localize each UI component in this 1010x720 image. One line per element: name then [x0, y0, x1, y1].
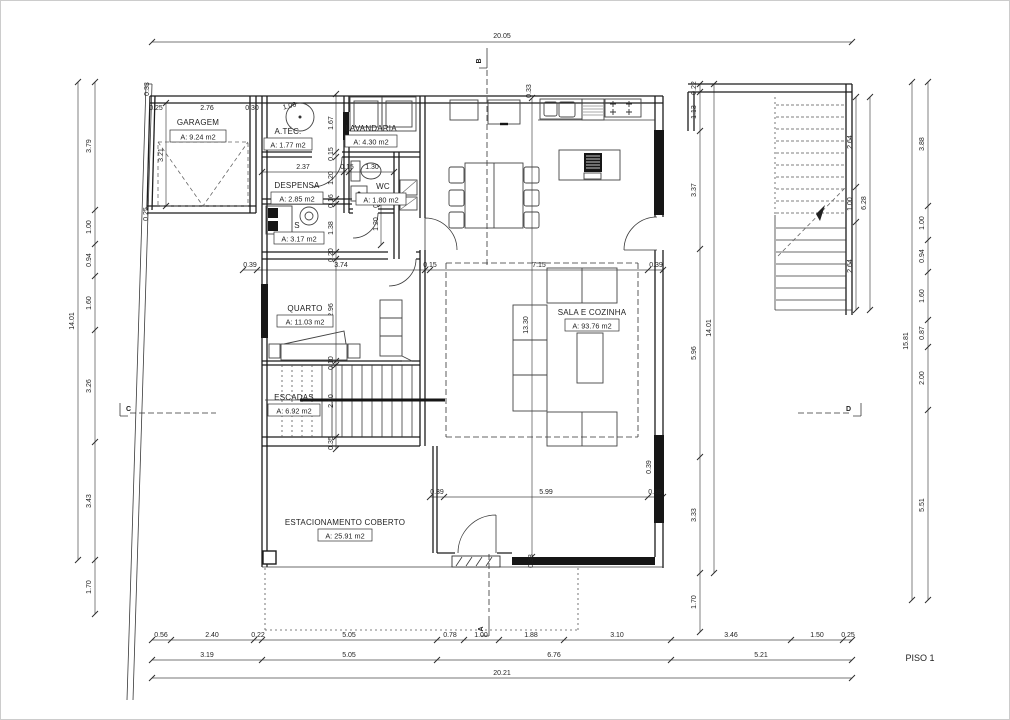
chair	[524, 190, 539, 206]
dim-int-0: 1.67	[328, 116, 335, 130]
dim-mid-1: 3.74	[334, 262, 348, 269]
dim-stair-0: 2.64	[847, 135, 854, 149]
drainer-hatch	[582, 99, 604, 120]
dim-left-total: 14.01	[69, 312, 76, 330]
dim-int-5: 0.20	[328, 248, 335, 262]
area-sala: A: 93.76 m2	[572, 322, 611, 331]
area-quarto: A: 11.03 m2	[286, 318, 325, 327]
dim-inner-0: 0.22	[691, 81, 698, 95]
sink-bowl-right	[559, 102, 575, 117]
dining-set	[449, 163, 539, 228]
nightstand	[348, 344, 360, 358]
room-sala: SALA E COZINHA	[558, 308, 627, 317]
chair	[524, 167, 539, 183]
dim-b1-4: 0.78	[443, 632, 457, 639]
dim-left-5: 3.43	[86, 494, 93, 508]
dim-left-3: 1.60	[86, 296, 93, 310]
chair	[449, 167, 464, 183]
sink-bowl-left	[544, 102, 557, 116]
dim-right-total: 15.81	[903, 332, 910, 350]
dim-desp-2: 1.30	[365, 164, 379, 171]
dim-desp-1: 0.15	[340, 164, 354, 171]
room-lavandaria: LAVANDARIA	[345, 124, 397, 133]
dim-b1-3: 5.05	[342, 632, 356, 639]
carport-column	[263, 551, 276, 564]
chair	[449, 190, 464, 206]
wardrobe	[380, 300, 402, 356]
section-c-label: C	[126, 406, 131, 413]
dim-top-total: 20.05	[493, 33, 511, 40]
dim-int-4: 1.38	[328, 221, 335, 235]
kitchen-fixtures	[450, 99, 655, 180]
dim-left-2: 0.94	[86, 253, 93, 267]
dim-b1-10: 0.25	[841, 632, 855, 639]
dim-sala-height: 13.30	[523, 316, 530, 334]
dim-mid-0: 0.39	[243, 262, 257, 269]
dim-door-wall: 0.38	[528, 554, 535, 568]
dim-low-0: 0.39	[430, 489, 444, 496]
room-wc: WC	[376, 182, 390, 191]
area-escadas: A: 6.92 m2	[276, 407, 311, 416]
chair	[449, 212, 464, 228]
dim-inner-4: 3.33	[691, 508, 698, 522]
stairs-exterior	[775, 97, 852, 310]
section-d-label: D	[846, 406, 851, 413]
dim-stair-2: 2.64	[847, 259, 854, 273]
area-s: A: 3.17 m2	[281, 235, 316, 244]
quarto-window	[261, 284, 268, 338]
dim-b2-2: 6.76	[547, 652, 561, 659]
area-atec: A: 1.77 m2	[270, 141, 305, 150]
stove	[605, 99, 641, 117]
laundry-basin	[300, 207, 318, 225]
area-wc: A: 1.80 m2	[363, 196, 398, 205]
entry-door	[452, 515, 500, 567]
dim-right-1: 1.00	[919, 216, 926, 230]
area-lavandaria: A: 4.30 m2	[353, 138, 388, 147]
terrace-door-arc	[624, 217, 657, 250]
dim-b1-9: 1.50	[810, 632, 824, 639]
dim-b1-8: 3.46	[724, 632, 738, 639]
dim-inner-total: 14.01	[706, 319, 713, 337]
dim-int-8: 2.10	[328, 394, 335, 408]
section-b-label: B	[476, 58, 483, 63]
garage-door	[158, 142, 248, 206]
dim-right-6: 5.51	[919, 498, 926, 512]
quarto-door-arc	[389, 259, 416, 286]
dim-int-7: 0.10	[328, 356, 335, 370]
dim-left-1: 1.00	[86, 220, 93, 234]
dim-low-1: 5.99	[539, 489, 553, 496]
dim-inner-1: 1.13	[691, 105, 698, 119]
dim-desp-0: 2.37	[296, 164, 310, 171]
dim-b1-0: 0.56	[154, 632, 168, 639]
dim-wc-1: 1.20	[373, 217, 380, 231]
dim-garage-1: 0.25	[143, 207, 150, 221]
dim-b1-2: 0.22	[251, 632, 265, 639]
dim-right-4: 0.87	[919, 326, 926, 340]
dim-tope-0: 0.25	[149, 105, 163, 112]
walls	[147, 84, 852, 568]
sala-east-glazing	[654, 435, 664, 523]
hall-sala-door-arc	[425, 218, 457, 250]
dim-right-0: 3.88	[919, 137, 926, 151]
dim-mid-3: 7.15	[532, 262, 546, 269]
section-markers: B A C D	[120, 48, 861, 636]
dim-right-3: 1.60	[919, 289, 926, 303]
floor-plan-page: B A C D	[0, 0, 1010, 720]
dim-int-2: 1.20	[328, 171, 335, 185]
bed	[281, 344, 347, 360]
dim-tope-2: 0.30	[245, 105, 259, 112]
area-garagem: A: 9.24 m2	[180, 133, 215, 142]
dim-inner-3: 5.96	[691, 346, 698, 360]
dim-int-1: 0.15	[328, 147, 335, 161]
room-garagem: GARAGEM	[177, 118, 219, 127]
dimension-labels: 20.05 20.21 14.01 3.79 1.00 0.94 1.60 3.…	[69, 33, 926, 677]
dim-stair-1: 1.00	[847, 197, 854, 211]
room-escadas: ESCADAS	[274, 393, 314, 402]
nightstand	[269, 344, 280, 358]
area-despensa: A: 2.85 m2	[279, 195, 314, 204]
sofa-group	[513, 268, 617, 446]
dim-garage-0: 3.21	[158, 148, 165, 162]
chair	[524, 212, 539, 228]
room-quarto: QUARTO	[287, 304, 322, 313]
dim-inner-2: 3.37	[691, 183, 698, 197]
dim-b1-5: 1.00	[474, 632, 488, 639]
dim-topwall-1: 0.33	[526, 84, 533, 98]
dim-stair-total: 6.28	[861, 196, 868, 210]
dim-int-3: 0.16	[328, 194, 335, 208]
dim-b2-3: 5.21	[754, 652, 768, 659]
room-atec: A.TÉC.	[275, 127, 302, 136]
coffee-table	[577, 333, 603, 383]
dim-topwall-0: 0.33	[144, 82, 151, 96]
area-estacionamento: A: 25.91 m2	[325, 532, 364, 541]
dim-right-2: 0.94	[919, 249, 926, 263]
room-despensa: DESPENSA	[274, 181, 320, 190]
sala-east-window	[654, 130, 664, 215]
dim-left-4: 3.26	[86, 379, 93, 393]
dim-mid-4: 0.39	[649, 262, 663, 269]
dim-inner-5: 1.70	[691, 595, 698, 609]
page-title: PISO 1	[905, 653, 934, 663]
dim-bottom-total: 20.21	[493, 670, 511, 677]
dim-b1-1: 2.40	[205, 632, 219, 639]
sofa-left	[513, 305, 547, 411]
dim-glazing-wall: 0.39	[646, 460, 653, 474]
dim-b1-7: 3.10	[610, 632, 624, 639]
dim-low-2: 0.39	[648, 489, 662, 496]
dim-mid-2: 0.15	[423, 262, 437, 269]
room-estacionamento: ESTACIONAMENTO COBERTO	[285, 518, 405, 527]
dim-left-0: 3.79	[86, 139, 93, 153]
floor-plan-drawing: B A C D	[0, 0, 1010, 720]
dim-b2-0: 3.19	[200, 652, 214, 659]
dim-b1-6: 1.88	[524, 632, 538, 639]
dim-tope-1: 2.76	[200, 105, 214, 112]
dim-right-5: 2.00	[919, 371, 926, 385]
dim-b2-1: 5.05	[342, 652, 356, 659]
dim-left-6: 1.70	[86, 580, 93, 594]
room-s: S	[294, 221, 300, 230]
section-a-label: A	[478, 626, 485, 631]
kitchen-island	[559, 150, 620, 180]
dim-int-9: 0.35	[328, 436, 335, 450]
doors	[158, 142, 657, 567]
